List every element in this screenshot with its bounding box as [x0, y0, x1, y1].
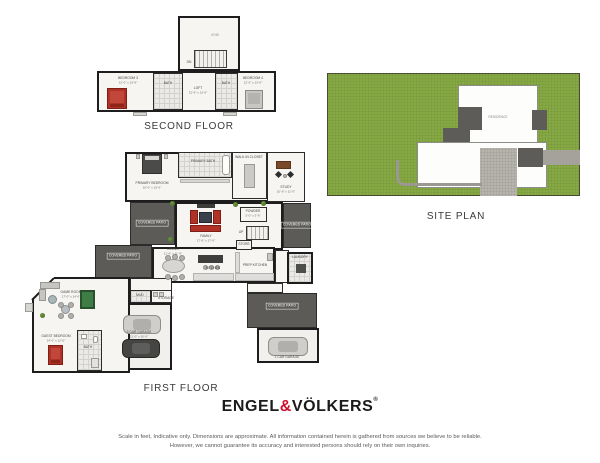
room-name: STORE	[238, 243, 249, 246]
room-name: VOID	[211, 34, 219, 37]
logo-volkers: VÖLKERS	[292, 398, 374, 415]
prep-counter	[235, 252, 240, 273]
room-name: STORAGE	[158, 297, 174, 300]
car	[268, 337, 308, 356]
wardrobe	[180, 179, 230, 183]
room-dims: 10'-6" x 11'-0"	[277, 190, 295, 194]
room-label-guest-bedroom: GUEST BEDROOM 14'-0" x 12'-0"	[41, 335, 70, 343]
sofa-section	[190, 210, 198, 224]
room-name: FAMILY	[200, 235, 211, 238]
room-label-loft: LOFT 12'-6" x 13'-6"	[189, 87, 208, 95]
room-label-powder: POWDER 5'-0" x 5'-6"	[245, 210, 260, 218]
kitchen-island	[198, 255, 223, 263]
bed-pillow	[51, 360, 60, 363]
covered-patio-label: COVERED PATIO	[266, 303, 298, 309]
bathtub	[222, 155, 230, 175]
room-dims: 11'-6" x 11'-0"	[164, 252, 182, 256]
chair	[58, 313, 64, 319]
hallway	[247, 283, 283, 293]
room-name: PRIMARY BEDROOM	[136, 182, 169, 185]
site-plan-title: SITE PLAN	[427, 211, 485, 222]
stoop	[223, 112, 237, 116]
patio-name: COVERED PATIO	[109, 254, 137, 258]
car	[122, 339, 160, 358]
room-label-bath4: BATH	[222, 82, 231, 86]
covered-patio-corner	[95, 245, 152, 278]
car-roof	[133, 319, 151, 330]
room-label-family: FAMILY 17'-6" x 17'-0"	[197, 235, 216, 243]
fridge	[267, 253, 273, 261]
shower	[91, 358, 99, 368]
room-name: 1 CAR GARAGE	[275, 356, 300, 359]
round-table	[48, 295, 57, 304]
bush	[40, 313, 45, 318]
wall	[33, 371, 130, 373]
registered-mark: ®	[373, 397, 378, 403]
closet-island	[244, 164, 255, 188]
prep-counter	[235, 273, 274, 281]
room-name: PREP KITCHEN	[243, 264, 267, 267]
room-label-mud: MUD	[136, 294, 144, 298]
logo-ampersand: &	[280, 398, 292, 415]
side-table	[283, 174, 287, 178]
room-dims: 12'-0" x 13'-6"	[243, 81, 263, 85]
second-floor-plan: DN VOID BEDROOM 3 12'-0" x 13'-6" BATH L…	[85, 12, 285, 118]
first-floor-plan: COVERED PATIO COVERED PATIO COVERED PATI…	[25, 148, 325, 375]
bed-blanket	[110, 91, 124, 103]
room-label-primary-bath: PRIMARY BATH	[191, 160, 215, 164]
bathroom	[215, 73, 238, 110]
tv-console	[197, 204, 215, 208]
room-label-prep-kitchen: PREP KITCHEN	[243, 264, 267, 268]
room-label-storage: STORAGE	[158, 297, 174, 301]
room-label-bedroom4: BEDROOM 4 12'-0" x 13'-6"	[243, 77, 263, 85]
laundry-island	[296, 264, 306, 273]
sofa-section	[190, 225, 221, 232]
room-name: STUDY	[280, 186, 291, 189]
bed-pillow	[145, 156, 159, 160]
room-dims: 14'-0" x 12'-0"	[41, 339, 70, 343]
room-label-game-room: GAME ROOM 17'-0" x 14'-0"	[61, 291, 82, 299]
site-patio	[443, 128, 470, 142]
room-label-laundry: LAUNDRY	[292, 256, 308, 260]
chair	[68, 302, 74, 308]
bush	[233, 202, 238, 207]
room-name: BATH	[222, 82, 231, 85]
room-label-bedroom3: BEDROOM 3 12'-0" x 13'-6"	[118, 77, 138, 85]
room-label-kitchen: KITCHEN	[206, 267, 220, 271]
sink	[81, 334, 87, 339]
courtyard-driveway	[480, 148, 517, 196]
room-name: RESIDENCE	[488, 116, 507, 119]
room-label-walk-in-closet: WALK-IN CLOSET	[235, 156, 263, 160]
logo-engel: ENGEL	[222, 398, 280, 415]
room-label-primary-bedroom: PRIMARY BEDROOM 16'-0" x 15'-6"	[136, 182, 169, 190]
nightstand	[164, 154, 168, 159]
chair	[68, 313, 74, 319]
bathroom	[153, 73, 183, 110]
room-dims: 21'-0" x 20'-0"	[127, 335, 152, 339]
staircase	[194, 50, 227, 68]
staircase	[246, 226, 269, 240]
kitchen-counter	[193, 273, 234, 281]
coffee-table	[199, 212, 212, 223]
site-patio	[532, 110, 547, 130]
room-dims: 17'-6" x 17'-0"	[197, 239, 216, 243]
room-label-bath3: BATH	[164, 82, 173, 86]
room-dims: 16'-0" x 15'-6"	[136, 186, 169, 190]
residence-label: RESIDENCE	[488, 116, 507, 120]
covered-patio-label: COVERED PATIO	[107, 253, 139, 259]
covered-patio-label: COVERED PATIO	[136, 220, 168, 226]
up-label: UP	[239, 231, 244, 235]
chair	[172, 275, 178, 281]
walkway-path	[396, 160, 482, 186]
room-name: DINING	[167, 248, 179, 251]
pool-table	[80, 290, 95, 309]
bed	[107, 88, 127, 109]
room-label-study: STUDY 10'-6" x 11'-0"	[277, 186, 295, 194]
second-floor-title: SECOND FLOOR	[144, 121, 234, 132]
car-roof	[132, 343, 150, 354]
room-name: KITCHEN	[206, 267, 220, 270]
room-label-2car-garage: 2 CAR GARAGE 21'-0" x 20'-0"	[127, 331, 152, 339]
dn-label: DN	[187, 61, 192, 65]
stoop	[133, 112, 147, 116]
bed-pillow	[110, 104, 124, 107]
disclaimer-line2: However, we cannot guarantee its accurac…	[170, 442, 431, 448]
wall	[54, 277, 130, 279]
room-dims: 12'-0" x 13'-6"	[118, 81, 138, 85]
entry-step	[25, 303, 33, 312]
room-dims: 17'-0" x 14'-0"	[61, 295, 82, 299]
room-name: BATH	[84, 346, 93, 349]
room-dims: 5'-0" x 5'-6"	[245, 214, 260, 218]
car-roof	[278, 341, 298, 352]
room-name: POWDER	[246, 210, 261, 213]
chair	[58, 302, 64, 308]
desk	[276, 161, 291, 169]
room-name: BEDROOM 4	[243, 77, 263, 80]
bush	[170, 201, 175, 206]
room-label-guest-bath: BATH	[84, 346, 93, 350]
room-name: BEDROOM 3	[118, 77, 138, 80]
room-name: GAME ROOM	[61, 291, 82, 294]
patio-name: COVERED PATIO	[283, 223, 311, 227]
room-label-store: STORE	[238, 243, 249, 247]
room-label-dining: DINING 11'-6" x 11'-0"	[164, 248, 182, 256]
driveway	[543, 150, 580, 165]
first-floor-title: FIRST FLOOR	[144, 383, 219, 394]
bed-blanket	[248, 93, 260, 104]
sofa	[39, 289, 46, 301]
chair	[165, 274, 171, 280]
engel-volkers-logo: ENGEL&VÖLKERS®	[222, 398, 379, 416]
bed-blanket	[51, 348, 60, 359]
bed	[245, 90, 263, 109]
covered-patio-rear	[247, 293, 317, 328]
covered-patio-label: COVERED PATIO	[281, 222, 313, 228]
nightstand	[136, 154, 140, 159]
sofa-section	[213, 210, 221, 224]
room-name: LOFT	[194, 87, 202, 90]
room-name: LAUNDRY	[292, 256, 308, 259]
room-name: DN	[187, 61, 192, 64]
toilet	[93, 336, 98, 343]
disclaimer-line1: Scale in feet, Indicative only. Dimensio…	[118, 433, 482, 439]
site-patio	[458, 107, 482, 130]
bed	[48, 345, 63, 365]
patio-name: COVERED PATIO	[138, 221, 166, 225]
room-name: MUD	[136, 294, 144, 297]
bush	[168, 237, 173, 242]
site-plan: RESIDENCE	[327, 73, 580, 196]
room-name: 2 CAR GARAGE	[127, 331, 152, 334]
room-name: UP	[239, 231, 244, 234]
room-name: WALK-IN CLOSET	[235, 156, 263, 159]
room-label-1car-garage: 1 CAR GARAGE	[275, 356, 300, 360]
void-label: VOID	[211, 34, 219, 38]
floorplan-sheet: DN VOID BEDROOM 3 12'-0" x 13'-6" BATH L…	[0, 0, 600, 463]
chair	[179, 274, 185, 280]
room-name: GUEST BEDROOM	[41, 335, 70, 338]
patio-name: COVERED PATIO	[268, 304, 296, 308]
room-name: BATH	[164, 82, 173, 85]
site-patio	[518, 148, 543, 167]
bed	[142, 154, 162, 174]
bush	[261, 201, 266, 206]
dining-table	[162, 259, 185, 273]
room-name: PRIMARY BATH	[191, 160, 215, 163]
sofa	[40, 282, 60, 289]
room-dims: 12'-6" x 13'-6"	[189, 91, 208, 95]
